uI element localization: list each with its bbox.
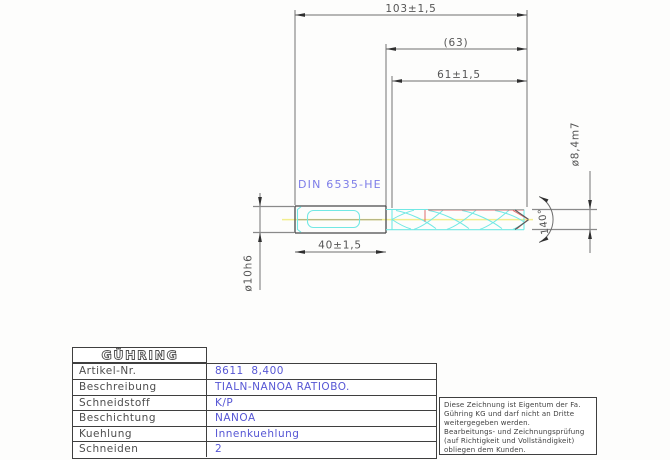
table-row: Kuehlung Innenkuehlung <box>73 426 436 442</box>
disclaimer-line: Gühring KG und darf nicht an Dritte <box>444 410 596 419</box>
dim-point-angle: 140° <box>537 207 552 235</box>
dim-cutting-diameter: ø8,4m7 <box>570 122 582 167</box>
disclaimer-line: Diese Zeichnung ist Eigentum der Fa. <box>444 401 596 410</box>
row-value-kuehlung: Innenkuehlung <box>207 427 436 442</box>
row-label-beschichtung: Beschichtung <box>73 411 207 426</box>
technical-drawing-sheet: 103±1,5 (63) 61±1,5 40±1,5 ø10h6 ø8,4m7 … <box>0 0 670 460</box>
dim-overall-length: 103±1,5 <box>385 3 436 15</box>
disclaimer-line: Bearbeitungs- und Zeichnungsprüfung <box>444 428 596 437</box>
row-value-schneiden: 2 <box>207 442 436 457</box>
row-label-beschreibung: Beschreibung <box>73 380 207 395</box>
disclaimer-line: obliegen dem Kunden. <box>444 446 596 455</box>
table-row: Schneiden 2 <box>73 441 436 457</box>
dim-flute-length: 61±1,5 <box>437 69 481 81</box>
guehring-logo-text: GÜHRING <box>101 348 178 362</box>
title-block-logo-cell: GÜHRING <box>72 347 207 363</box>
table-row: Artikel-Nr. 8611 8,400 <box>73 364 436 380</box>
row-label-schneidstoff: Schneidstoff <box>73 396 207 411</box>
dimension-lines <box>295 15 527 252</box>
table-row: Beschichtung NANOA <box>73 410 436 426</box>
dim-reference-length: (63) <box>444 37 469 49</box>
row-label-artikel-nr: Artikel-Nr. <box>73 364 207 380</box>
ownership-disclaimer-box: Diese Zeichnung ist Eigentum der Fa. Güh… <box>439 397 597 455</box>
row-value-beschreibung: TIALN-NANOA RATIOBO. <box>207 380 436 395</box>
title-block-table: Artikel-Nr. 8611 8,400 Beschreibung TIAL… <box>72 363 437 459</box>
row-label-kuehlung: Kuehlung <box>73 427 207 442</box>
guehring-logo: GÜHRING <box>75 348 205 362</box>
shank-standard-label: DIN 6535-HE <box>298 178 382 191</box>
row-value-beschichtung: NANOA <box>207 411 436 426</box>
dim-shank-diameter: ø10h6 <box>243 254 255 291</box>
row-value-schneidstoff: K/P <box>207 396 436 411</box>
row-value-artikel-nr: 8611 8,400 <box>207 364 436 380</box>
row-label-schneiden: Schneiden <box>73 442 207 457</box>
dim-clamping-length: 40±1,5 <box>318 240 362 252</box>
disclaimer-line: weitergegeben werden. <box>444 419 596 428</box>
table-row: Beschreibung TIALN-NANOA RATIOBO. <box>73 379 436 395</box>
extension-lines <box>253 10 597 290</box>
table-row: Schneidstoff K/P <box>73 395 436 411</box>
disclaimer-line: (auf Richtigkeit und Vollständigkeit) <box>444 437 596 446</box>
